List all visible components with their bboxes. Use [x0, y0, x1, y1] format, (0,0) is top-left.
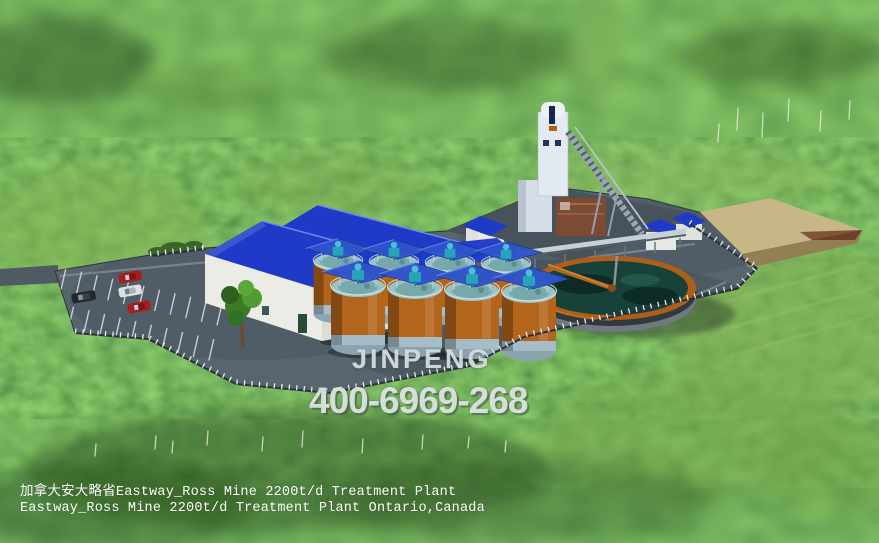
caption-line-1: 加拿大安大略省Eastway_Ross Mine 2200t/d Treatme… [20, 479, 456, 500]
caption-line-2: Eastway_Ross Mine 2200t/d Treatment Plan… [20, 501, 485, 516]
site-render [0, 0, 879, 543]
phone-watermark: 400-6969-268 [309, 380, 527, 422]
brand-watermark: JINPENG [352, 344, 492, 375]
promo-image: JINPENG 400-6969-268 加拿大安大略省Eastway_Ross… [0, 0, 879, 543]
